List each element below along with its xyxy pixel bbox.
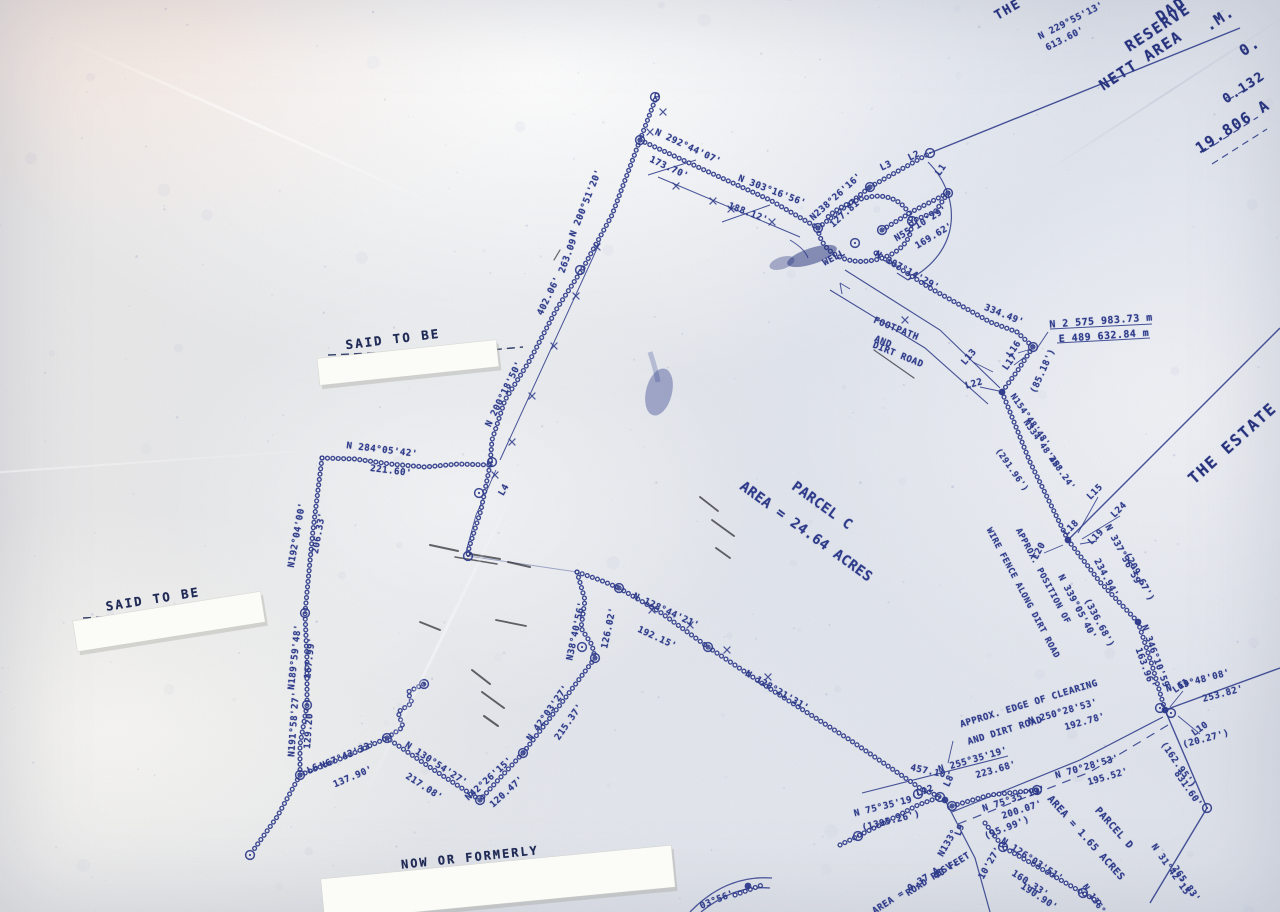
paper-blotch — [1170, 367, 1179, 376]
paper-speck — [701, 143, 703, 145]
paper-speck — [841, 111, 843, 113]
paper-speck — [573, 158, 575, 160]
paper-blotch — [396, 542, 402, 548]
paper-blotch — [304, 847, 312, 855]
station-center-dot — [306, 704, 308, 706]
paper-speck — [78, 899, 79, 900]
paper-blotch — [820, 863, 832, 875]
paper-speck — [654, 316, 656, 318]
paper-blotch — [698, 14, 711, 27]
paper-blotch — [384, 720, 390, 726]
paper-speck — [1276, 599, 1277, 600]
paper-speck — [960, 715, 962, 717]
paper-speck — [189, 672, 190, 673]
paper-blotch — [201, 209, 213, 221]
paper-speck — [948, 57, 950, 59]
paper-speck — [1013, 134, 1014, 135]
paper-speck — [469, 144, 470, 145]
paper-speck — [965, 192, 967, 194]
paper-speck — [813, 844, 815, 846]
paper-speck — [679, 898, 681, 900]
paper-speck — [945, 143, 946, 144]
paper-speck — [132, 97, 133, 98]
paper-speck — [431, 677, 434, 680]
paper-speck — [767, 150, 769, 152]
station-center-dot — [639, 139, 641, 141]
paper-speck — [865, 288, 867, 290]
paper-speck — [653, 63, 655, 65]
paper-speck — [91, 613, 94, 616]
paper-speck — [395, 845, 397, 847]
paper-speck — [408, 387, 409, 388]
station-center-dot — [522, 752, 524, 754]
station-center-dot — [881, 229, 883, 231]
paper-blotch — [1187, 851, 1194, 858]
station-center-dot — [618, 587, 620, 589]
paper-speck — [1128, 103, 1129, 104]
paper-speck — [985, 187, 987, 189]
station-center-dot — [869, 186, 871, 188]
paper-speck — [163, 205, 165, 207]
paper-blotch — [842, 385, 847, 390]
paper-speck — [612, 501, 613, 502]
station-center-dot — [857, 835, 859, 837]
paper-speck — [153, 774, 155, 776]
paper-speck — [760, 52, 763, 55]
paper-speck — [1036, 114, 1038, 116]
paper-speck — [127, 589, 128, 590]
paper-speck — [630, 429, 632, 431]
station-center-dot — [594, 657, 596, 659]
paper-speck — [304, 781, 306, 783]
station-solid-dot — [1135, 619, 1142, 626]
paper-speck — [186, 24, 188, 26]
paper-speck — [829, 624, 831, 626]
paper-speck — [125, 78, 127, 80]
paper-speck — [408, 116, 409, 117]
paper-speck — [94, 532, 96, 534]
station-solid-dot — [942, 797, 949, 804]
paper-speck — [503, 651, 506, 654]
paper-speck — [1167, 211, 1168, 212]
paper-speck — [399, 632, 400, 633]
station-center-dot — [386, 737, 388, 739]
paper-speck — [243, 61, 244, 62]
paper-speck — [464, 525, 465, 526]
paper-speck — [1154, 540, 1156, 542]
paper-speck — [487, 455, 488, 456]
paper-speck — [456, 171, 458, 173]
paper-speck — [655, 481, 657, 483]
paper-speck — [825, 693, 827, 695]
survey-map-photo: N 292°44'07'173.70'N 303°16'56'188.12'N … — [0, 0, 1280, 912]
station-center-dot — [581, 646, 583, 648]
paper-speck — [1145, 433, 1147, 435]
station-center-dot — [299, 774, 301, 776]
paper-speck — [879, 7, 880, 8]
paper-speck — [523, 37, 524, 38]
paper-speck — [711, 849, 713, 851]
paper-speck — [641, 690, 644, 693]
paper-speck — [614, 729, 616, 731]
paper-speck — [852, 412, 853, 413]
paper-speck — [1042, 348, 1044, 350]
paper-blotch — [606, 783, 612, 789]
paper-speck — [110, 661, 112, 663]
paper-speck — [321, 279, 322, 280]
paper-speck — [936, 367, 937, 368]
paper-speck — [86, 91, 88, 93]
paper-speck — [768, 321, 770, 323]
paper-speck — [162, 114, 163, 115]
station-center-dot — [1170, 712, 1172, 714]
paper-speck — [0, 225, 2, 227]
paper-speck — [250, 49, 251, 50]
paper-speck — [951, 485, 954, 488]
paper-speck — [524, 273, 525, 274]
station-solid-dot — [745, 883, 752, 890]
paper-speck — [1101, 462, 1102, 463]
paper-speck — [290, 826, 292, 828]
paper-speck — [113, 293, 114, 294]
paper-speck — [105, 880, 106, 881]
paper-speck — [685, 186, 686, 187]
paper-speck — [490, 840, 491, 841]
paper-speck — [413, 831, 415, 833]
paper-speck — [320, 898, 322, 900]
paper-blotch — [355, 251, 367, 263]
station-center-dot — [491, 461, 493, 463]
paper-speck — [849, 416, 850, 417]
paper-speck — [81, 137, 84, 140]
paper-speck — [137, 768, 139, 770]
paper-blotch — [873, 206, 881, 214]
paper-blotch — [824, 824, 838, 838]
paper-speck — [734, 480, 735, 481]
paper-speck — [1267, 127, 1268, 128]
paper-speck — [541, 425, 543, 427]
station-center-dot — [929, 152, 931, 154]
paper-speck — [793, 627, 796, 630]
paper-speck — [448, 188, 450, 190]
paper-speck — [950, 80, 951, 81]
paper-speck — [871, 107, 873, 109]
paper-speck — [1068, 170, 1069, 171]
paper-speck — [504, 348, 506, 350]
paper-speck — [315, 620, 318, 623]
paper-speck — [929, 749, 930, 750]
paper-speck — [78, 0, 79, 1]
paper-speck — [948, 342, 951, 345]
paper-speck — [316, 404, 317, 405]
paper-blotch — [86, 73, 95, 82]
paper-speck — [1205, 573, 1206, 574]
paper-speck — [940, 585, 941, 586]
paper-speck — [135, 255, 138, 258]
paper-blotch — [25, 152, 37, 164]
paper-blotch — [494, 653, 503, 662]
paper-blotch — [140, 443, 151, 454]
paper-speck — [8, 668, 9, 669]
paper-speck — [1190, 263, 1191, 264]
paper-speck — [902, 581, 904, 583]
paper-speck — [756, 478, 758, 480]
paper-speck — [1223, 599, 1225, 601]
paper-speck — [1257, 366, 1259, 368]
paper-speck — [176, 416, 178, 418]
paper-speck — [379, 406, 381, 408]
station-center-dot — [654, 96, 656, 98]
paper-speck — [324, 265, 326, 267]
paper-speck — [506, 746, 508, 748]
paper-speck — [867, 862, 868, 863]
paper-speck — [763, 272, 765, 274]
paper-speck — [796, 763, 797, 764]
paper-speck — [393, 707, 395, 709]
paper-speck — [1144, 551, 1147, 554]
paper-speck — [966, 142, 969, 145]
paper-speck — [133, 398, 134, 399]
paper-speck — [1176, 543, 1179, 546]
station-center-dot — [947, 192, 949, 194]
paper-speck — [44, 440, 46, 442]
paper-blotch — [834, 685, 841, 692]
paper-blotch — [898, 477, 906, 485]
paper-blotch — [232, 697, 236, 701]
paper-speck — [384, 98, 386, 100]
paper-speck — [46, 309, 47, 310]
paper-blotch — [482, 249, 486, 253]
paper-blotch — [721, 713, 725, 717]
paper-speck — [0, 691, 2, 693]
paper-speck — [95, 909, 96, 910]
paper-speck — [783, 787, 785, 789]
paper-blotch — [515, 121, 526, 132]
station-solid-dot — [999, 389, 1006, 396]
paper-speck — [798, 396, 799, 397]
paper-speck — [1270, 53, 1271, 54]
paper-speck — [282, 414, 284, 416]
station-center-dot — [249, 854, 251, 856]
paper-blotch — [396, 702, 403, 709]
paper-speck — [805, 76, 807, 78]
paper-speck — [506, 9, 507, 10]
paper-blotch — [174, 343, 183, 352]
paper-speck — [271, 294, 273, 296]
paper-speck — [63, 622, 65, 624]
paper-speck — [846, 328, 847, 329]
paper-speck — [798, 472, 799, 473]
paper-speck — [681, 333, 683, 335]
paper-speck — [517, 464, 519, 466]
paper-speck — [115, 315, 116, 316]
paper-speck — [165, 8, 167, 10]
paper-speck — [91, 876, 93, 878]
paper-speck — [133, 493, 135, 495]
paper-speck — [1, 667, 3, 669]
paper-speck — [462, 453, 464, 455]
paper-speck — [980, 393, 981, 394]
paper-speck — [1224, 261, 1225, 262]
station-solid-dot — [1162, 707, 1169, 714]
paper-speck — [1120, 860, 1121, 861]
paper-speck — [12, 153, 13, 154]
paper-speck — [454, 250, 456, 252]
paper-speck — [777, 698, 779, 700]
paper-speck — [477, 2, 478, 3]
paper-speck — [883, 398, 885, 400]
paper-speck — [428, 802, 430, 804]
paper-speck — [245, 417, 246, 418]
paper-blotch — [955, 72, 962, 79]
paper-speck — [643, 446, 645, 448]
paper-speck — [547, 522, 548, 523]
paper-speck — [56, 399, 57, 400]
station-center-dot — [467, 555, 469, 557]
paper-blotch — [157, 184, 170, 197]
paper-speck — [859, 481, 862, 484]
paper-speck — [445, 144, 447, 146]
paper-speck — [978, 25, 981, 28]
paper-speck — [144, 290, 145, 291]
paper-speck — [51, 38, 52, 39]
paper-speck — [12, 414, 13, 415]
paper-speck — [902, 779, 904, 781]
paper-speck — [633, 358, 635, 360]
paper-speck — [391, 477, 392, 478]
paper-blotch — [953, 5, 960, 12]
paper-speck — [1227, 498, 1228, 499]
paper-speck — [875, 353, 876, 354]
paper-speck — [1213, 113, 1215, 115]
paper-speck — [1276, 236, 1279, 239]
paper-blotch — [338, 572, 346, 580]
paper-blotch — [1247, 199, 1258, 210]
paper-speck — [354, 524, 356, 526]
paper-speck — [752, 613, 753, 614]
paper-speck — [882, 407, 884, 409]
paper-speck — [134, 443, 135, 444]
paper-speck — [230, 224, 231, 225]
paper-blotch — [1035, 669, 1046, 680]
paper-blotch — [790, 559, 797, 566]
station-center-dot — [939, 796, 941, 798]
paper-speck — [540, 256, 542, 258]
paper-speck — [443, 621, 445, 623]
paper-speck — [725, 776, 727, 778]
paper-speck — [697, 521, 699, 523]
paper-blotch — [366, 56, 379, 69]
paper-blotch — [658, 2, 665, 9]
paper-speck — [1138, 452, 1139, 453]
station-center-dot — [1206, 807, 1208, 809]
paper-speck — [755, 637, 757, 639]
paper-blotch — [1104, 648, 1115, 659]
paper-blotch — [603, 245, 614, 256]
paper-speck — [602, 121, 605, 124]
paper-speck — [556, 421, 559, 424]
paper-speck — [573, 113, 575, 115]
paper-speck — [934, 809, 935, 810]
paper-blotch — [77, 859, 90, 872]
paper-speck — [901, 75, 903, 77]
paper-speck — [1, 384, 2, 385]
paper-speck — [708, 271, 709, 272]
paper-speck — [1207, 709, 1209, 711]
paper-speck — [12, 708, 13, 709]
paper-speck — [1274, 688, 1275, 689]
station-center-dot — [854, 242, 856, 244]
paper-speck — [145, 146, 147, 148]
paper-speck — [577, 71, 579, 73]
paper-speck — [489, 272, 491, 274]
paper-speck — [966, 395, 968, 397]
paper-blotch — [606, 556, 619, 569]
paper-speck — [892, 69, 893, 70]
paper-blotch — [49, 350, 56, 357]
paper-speck — [124, 199, 125, 200]
paper-speck — [981, 904, 982, 905]
paper-speck — [285, 854, 286, 855]
survey-map-canvas: N 292°44'07'173.70'N 303°16'56'188.12'N … — [0, 0, 1280, 912]
station-center-dot — [579, 269, 581, 271]
paper-speck — [44, 372, 46, 374]
paper-speck — [486, 752, 488, 754]
paper-speck — [1050, 494, 1052, 496]
paper-speck — [190, 50, 191, 51]
paper-speck — [1236, 641, 1239, 644]
paper-speck — [204, 545, 206, 547]
paper-speck — [734, 378, 735, 379]
paper-speck — [497, 532, 500, 535]
paper-speck — [1159, 139, 1160, 140]
paper-speck — [1215, 471, 1216, 472]
paper-speck — [1192, 593, 1193, 594]
paper-speck — [361, 716, 362, 717]
paper-speck — [267, 440, 270, 443]
paper-speck — [333, 865, 334, 866]
paper-speck — [55, 846, 58, 849]
paper-speck — [208, 201, 209, 202]
paper-speck — [980, 527, 981, 528]
station-center-dot — [423, 683, 425, 685]
paper-blotch — [163, 684, 174, 695]
paper-speck — [808, 620, 809, 621]
paper-speck — [202, 264, 204, 266]
paper-speck — [163, 208, 165, 210]
station-center-dot — [478, 492, 480, 494]
paper-speck — [1063, 446, 1065, 448]
paper-speck — [667, 367, 669, 369]
paper-speck — [278, 190, 280, 192]
paper-speck — [564, 175, 565, 176]
paper-speck — [960, 269, 961, 270]
paper-speck — [189, 300, 190, 301]
paper-speck — [129, 305, 130, 306]
paper-speck — [514, 228, 515, 229]
paper-speck — [328, 347, 330, 349]
paper-speck — [918, 835, 919, 836]
paper-blotch — [726, 632, 733, 639]
paper-blotch — [275, 883, 283, 891]
paper-speck — [658, 696, 660, 698]
paper-blotch — [1248, 637, 1258, 647]
paper-speck — [361, 722, 363, 724]
paper-speck — [34, 555, 36, 557]
paper-speck — [372, 11, 375, 14]
station-center-dot — [1032, 346, 1034, 348]
paper-speck — [971, 696, 972, 697]
